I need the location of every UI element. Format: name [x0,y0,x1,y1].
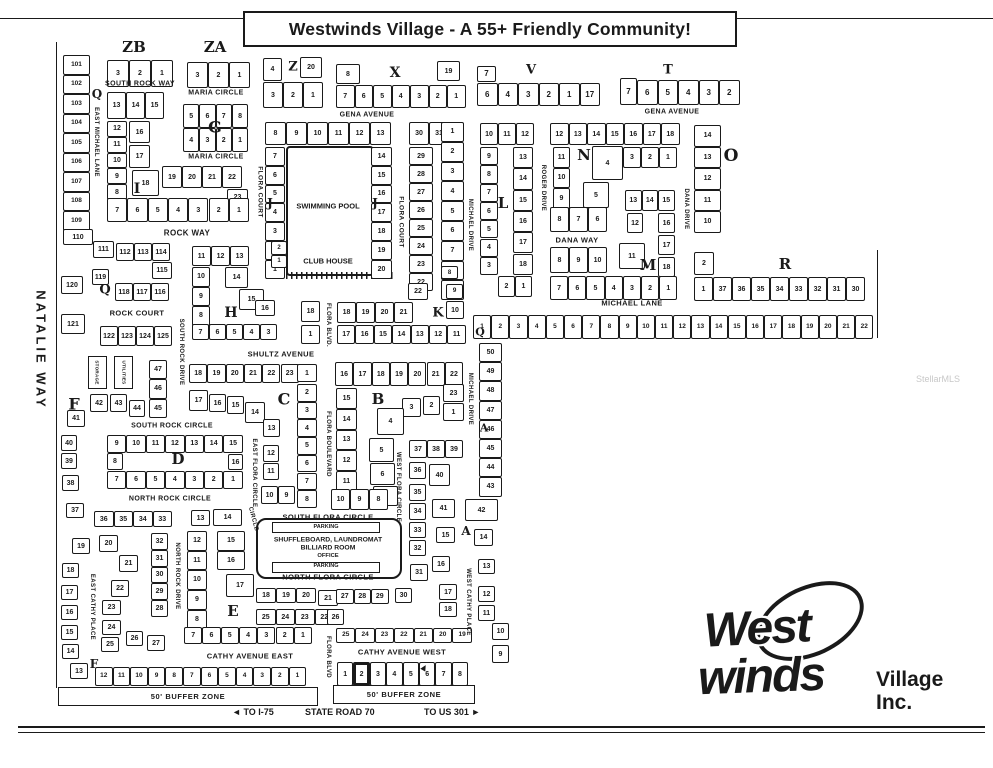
shuffleboard-laundromat-label: SHUFFLEBOARD, LAUNDROMAT [274,537,382,544]
lot-box: 118 [115,283,133,301]
lot-box: 109 [63,211,90,231]
lot-box: 35 [114,511,134,527]
lot-box: 39 [445,440,463,458]
buffer-zone-label: 50' BUFFER ZONE [151,692,226,701]
lot-box: 110 [63,229,93,245]
lot-box: 16 [129,121,150,143]
to-i75-text: TO I-75 [243,707,273,717]
section-letter-r: R [779,255,791,273]
lot-box: 34 [133,511,153,527]
lot-box: 9 [569,247,588,273]
lot-box: 18 [782,315,800,339]
lot-box: 5 [373,85,392,108]
lot-box: 5 [658,80,679,105]
lot-box: 6 [480,202,498,220]
lot-box: 5 [403,662,419,686]
lot-box: 12 [429,325,447,344]
lot-box: 11 [447,325,465,344]
lot-box: 7 [184,627,202,644]
lot-box: 9 [619,315,637,339]
lot-box: 27 [409,183,433,201]
section-letter-m: M [640,256,657,274]
section-letter-za: ZA [204,38,227,56]
lot-box: 14 [392,325,410,344]
lot-box: 5 [146,471,165,489]
lot-box: 14 [474,529,493,546]
lot-box: 16 [513,211,533,232]
lot-box: 24 [276,609,296,625]
lot-box: 10 [588,247,607,273]
lot-box: 1 [223,471,242,489]
lot-box: 9 [278,486,295,504]
lot-box: 13 [185,435,204,453]
street-label: FLORA BOULEVARD [325,411,331,477]
lot-box: 121 [61,314,85,334]
lot-box: 10 [694,211,721,233]
lot-box: 9 [148,667,166,686]
street-label: DANA WAY [555,236,598,245]
lot-box: 7 [550,276,568,300]
lot-box: 4 [605,276,623,300]
lot-box: 28 [354,589,372,604]
section-letter-g: G [208,118,222,137]
lot-box: 8 [336,64,360,84]
lot-box: 41 [432,499,455,518]
lot-box: 22 [394,628,413,643]
lot-box: 1 [337,662,353,686]
lot-box: 26 [126,631,143,646]
lot-box: 5 [583,182,609,208]
lot-box: 14 [642,190,659,211]
lot-box: 2 [204,471,223,489]
lot-box: 14 [587,123,606,145]
street-label: ROCK COURT [110,309,165,318]
lot-box: 1 [443,403,464,421]
lot-box: 2 [271,241,287,255]
lot-box: 50 [479,343,502,362]
lot-box: 2 [353,662,369,686]
lot-box: 29 [151,583,168,600]
section-letter-z: Z [288,60,298,75]
lot-box: 10 [637,315,655,339]
lot-box: 22 [111,580,129,597]
lot-box: 12 [187,531,207,551]
lot-box: 2 [297,384,317,402]
lot-box: 21 [394,302,413,323]
lot-box: 3 [402,398,421,417]
parking-label: PARKING [314,524,339,530]
state-road-70-label: STATE ROAD 70 [305,707,375,717]
lot-box: 12 [627,213,643,233]
lot-box: 20 [182,166,202,188]
lot-box: 111 [93,241,114,258]
lot-box: 23 [295,609,315,625]
lot-box: 9 [107,168,127,184]
lot-box: 1 [229,62,250,88]
street-label: ROGER DRIVE [540,165,546,211]
lot-box: 7 [297,473,317,491]
lot-box: 7 [582,315,600,339]
lot-box: 4 [263,58,282,81]
lot-box: 29 [409,147,433,165]
lot-box: 1 [232,128,248,152]
lot-box: 12 [673,315,691,339]
lot-box: 10 [130,667,148,686]
lot-box: 16 [432,556,450,572]
buffer-zone-left: 50' BUFFER ZONE [58,687,318,706]
lot-box: 6 [477,83,498,106]
lot-box: 17 [643,123,662,145]
state-road-line [18,726,985,728]
lot-box: 4 [168,198,188,222]
lot-box: 2 [441,142,464,162]
lot-box: 8 [297,490,317,508]
lot-box: 17 [129,145,150,168]
east-boundary-line [877,250,878,338]
lot-box: 13 [336,430,357,451]
lot-box: 38 [427,440,445,458]
lot-box: 13 [478,559,495,574]
lot-box: 25 [101,637,119,652]
lot-box: 7 [336,85,355,108]
lot-box: 8 [441,266,458,279]
lot-box: 18 [337,302,356,323]
lot-box: 114 [152,243,170,261]
lot-box: 3 [623,276,641,300]
lot-box: 4 [392,85,411,108]
lot-box: 27 [336,589,354,604]
lot-box: 18 [256,588,276,603]
swimming-pool-label: SWIMMING POOL [296,202,359,211]
street-label: MICHAEL LANE [601,299,662,308]
lot-box: 11 [263,463,279,480]
lot-box: 13 [411,325,429,344]
street-label: GENA AVENUE [645,109,700,116]
section-letter-a: A [480,422,489,435]
lot-box: 1 [271,255,287,269]
lot-box: 49 [479,362,502,381]
lot-box: 10 [553,168,570,189]
lot-box: 8 [265,122,286,145]
plat-map: Westwinds Village - A 55+ Friendly Commu… [0,0,993,768]
lot-box: 17 [189,390,208,411]
lot-box: 2 [271,667,289,686]
lot-box: 9 [350,489,369,510]
lot-box: 115 [152,262,172,279]
lot-box: 31 [151,550,168,567]
street-label: MICHAEL DRIVE [467,199,473,251]
lot-box: 16 [61,605,78,620]
lot-box: 19 [390,362,408,386]
lot-box: 25 [409,219,433,237]
lot-box: 3 [623,147,641,168]
lot-box: 18 [439,602,457,617]
lot-box: 2 [423,396,440,415]
lot-box: 15 [336,388,357,409]
lot-box: 11 [478,605,495,621]
lot-box: 10 [480,123,498,145]
lot-box: 14 [126,92,145,119]
street-label: SHULTZ AVENUE [248,350,315,359]
lot-box: 8 [550,247,569,273]
lot-box: 7 [620,78,637,105]
lot-box: 13 [513,147,533,168]
street-label: NATALIE WAY [34,290,49,409]
lot-box: 21 [119,555,138,572]
street-label: EAST FLORA CIRCLE [251,439,257,508]
lot-box: 14 [213,509,242,526]
lot-box: 48 [479,381,502,400]
lot-box: 3 [188,198,208,222]
lot-box: 25 [336,628,355,643]
street-label: DANA DRIVE [683,188,689,229]
lot-box: 1 [659,147,677,168]
street-label: SOUTH ROCK DRIVE [178,319,184,386]
lot-box: 36 [94,511,114,527]
lot-box: 7 [192,324,209,340]
lot-box: 16 [624,123,643,145]
lot-box: 3 [257,627,275,644]
lot-box: 2 [429,85,448,108]
lot-box: 12 [550,123,569,145]
lot-box: 8 [192,306,210,326]
lot-box: 16 [355,325,373,344]
lot-box: 27 [147,635,165,651]
lot-box: 13 [263,419,280,437]
section-letter-f: F [90,657,99,671]
lot-box: 101 [63,55,90,75]
lot-box: 9 [480,147,498,165]
lot-box: 5 [441,201,464,221]
lot-box: 20 [99,535,118,552]
lot-box: 1 [297,364,317,382]
lot-box: 11 [107,137,127,153]
lot-box: 11 [113,667,131,686]
lot-box: 13 [230,246,249,266]
lot-box: 17 [513,232,533,253]
club-house-label: CLUB HOUSE [303,257,353,266]
lot-box: 15 [606,123,625,145]
lot-box: 35 [409,484,426,501]
lot-box: 12 [336,450,357,471]
section-letter-q: Q [92,87,102,101]
street-label: MICHAEL DRIVE [467,373,473,425]
lot-box: 16 [658,213,675,233]
lot-box: 14 [62,644,79,659]
lot-box: 4 [243,324,260,340]
lot-box: 19 [801,315,819,339]
lot-box: 8 [107,453,123,470]
lot-box: 22 [408,283,428,300]
lot-box: 14 [245,402,265,423]
street-label: SOUTH ROCK WAY [105,81,175,88]
lot-box: 19 [356,302,375,323]
lot-box: 32 [409,540,426,556]
lot-box: 18 [301,301,320,322]
street-label: FLORA COURT [398,196,405,247]
lot-box: 40 [429,464,450,486]
lot-box: 25 [256,609,276,625]
lot-box: 4 [592,146,623,180]
lot-box: 15 [658,190,675,211]
lot-box: 17 [439,584,457,600]
lot-box: 6 [568,276,586,300]
lot-box: 112 [116,243,134,261]
lot-box: 33 [409,522,426,538]
lot-box: 20 [375,302,394,323]
lot-box: 8 [452,662,468,686]
lot-box: 10 [261,486,278,504]
lot-box: 19 [162,166,182,188]
lot-box: 44 [129,400,145,417]
street-label: SOUTH ROCK CIRCLE [131,423,213,430]
lot-box: 8 [165,667,183,686]
lot-box: 33 [153,511,173,527]
lot-box: 4 [480,239,498,257]
section-letter-f: F [68,395,79,414]
street-label: WEST FLORA CIRCLE [395,452,401,522]
lot-box: 12 [263,445,279,462]
lot-box: 35 [751,277,770,301]
lot-box: 6 [127,198,147,222]
lot-box: 47 [149,360,167,379]
to-us301-text: TO US 301 [424,707,469,717]
lot-box: 37 [66,503,84,518]
lot-box: 3 [441,162,464,182]
street-label: CIRCLE [247,506,259,531]
street-label: CATHY AVENUE EAST [207,652,294,661]
lot-box: 2 [208,62,229,88]
lot-box: 36 [732,277,751,301]
lot-box: 33 [789,277,808,301]
lot-box: 1 [441,122,464,142]
lot-box: 17 [764,315,782,339]
lot-box: 4 [297,419,317,437]
lot-box: 42 [90,394,108,412]
lot-box: 5 [480,220,498,238]
state-road-line-2 [18,732,985,733]
lot-box: 7 [265,147,285,166]
lot-box: 1 [294,627,312,644]
street-label: MARIA CIRCLE [188,90,243,97]
lot-box: 2 [498,276,515,297]
lot-box: 13 [569,123,588,145]
street-label: FLORA BLVD. [325,303,331,347]
lot-box: 5 [297,437,317,455]
lot-box: 30 [846,277,865,301]
lot-box: 105 [63,133,90,153]
lot-box: 2 [719,80,740,105]
street-label: SOUTH FLORA CIRCLE [282,513,373,522]
lot-box: 108 [63,192,90,212]
lot-box: 37 [713,277,732,301]
lot-box: 19 [276,588,296,603]
section-letter-l: L [498,194,509,212]
lot-box: 2 [539,83,560,106]
section-letter-zb: ZB [122,38,146,56]
logo-winds-text: winds [697,647,825,706]
lot-box: 10 [307,122,328,145]
lot-box: 2 [641,147,659,168]
lot-box: 20 [819,315,837,339]
lot-box: 15 [513,190,533,211]
lot-box: 14 [371,147,392,166]
lot-box: 34 [409,503,426,520]
lot-box: 3 [263,82,283,108]
lot-box: 3 [410,85,429,108]
lot-box: 7 [107,471,126,489]
lot-box: 9 [107,435,126,453]
lot-box: 45 [149,399,167,418]
lot-box: 45 [479,439,502,458]
lot-box: 9 [187,590,207,610]
lot-box: 30 [395,588,412,603]
lot-box: 3 [699,80,720,105]
lot-box: 11 [328,122,349,145]
lot-box: 15 [374,325,392,344]
lot-box: 5 [586,276,604,300]
lot-box: 6 [355,85,374,108]
lot-box: 5 [546,315,564,339]
lot-box: 10 [446,301,464,319]
lot-box: 36 [409,462,426,479]
lot-box: 5 [218,667,236,686]
lot-box: 3 [265,222,285,241]
lot-box: 4 [165,471,184,489]
lot-box: 1 [659,276,677,300]
to-i75-label: ◄ TO I-75 [232,707,274,717]
watermark: StellarMLS [916,374,960,384]
section-letter-j: J [267,196,273,210]
lot-box: 39 [61,453,77,469]
lot-box: 21 [202,166,222,188]
lot-box: 1 [559,83,580,106]
lot-box: 8 [232,104,248,128]
lot-box: 14 [225,267,248,288]
lot-box: 28 [151,600,168,617]
section-letter-o: O [724,146,739,166]
page-title: Westwinds Village - A 55+ Friendly Commu… [289,19,691,40]
lot-box: 8 [369,489,388,510]
lot-box: 1 [229,198,249,222]
lot-box: 29 [371,589,389,604]
lot-box: 1 [515,276,532,297]
street-label: FLORA BLVD [325,636,331,678]
lot-box: 12 [478,586,495,602]
street-label: EAST CATHY PLACE [89,574,95,640]
lot-box: 17 [337,325,355,344]
lot-box: 5 [148,198,168,222]
lot-box: 17 [226,574,254,597]
lot-box: 4 [386,662,402,686]
lot-box: 10 [492,623,509,640]
lot-box: 103 [63,94,90,114]
lot-box: 6 [297,455,317,473]
lot-box: 17 [61,585,78,600]
lot-box: 43 [110,394,127,412]
lot-box: 124 [136,326,154,346]
lot-box: 102 [63,75,90,95]
lot-box: 22 [855,315,873,339]
lot-box: 18 [513,254,533,275]
street-label: NORTH ROCK DRIVE [174,542,180,609]
lot-box: 16 [217,551,245,571]
lot-box: 23 [443,384,464,402]
lot-box: 24 [409,237,433,255]
lot-box: 13 [191,510,210,526]
lot-box: 15 [371,166,392,185]
section-letter-b: B [372,390,385,408]
